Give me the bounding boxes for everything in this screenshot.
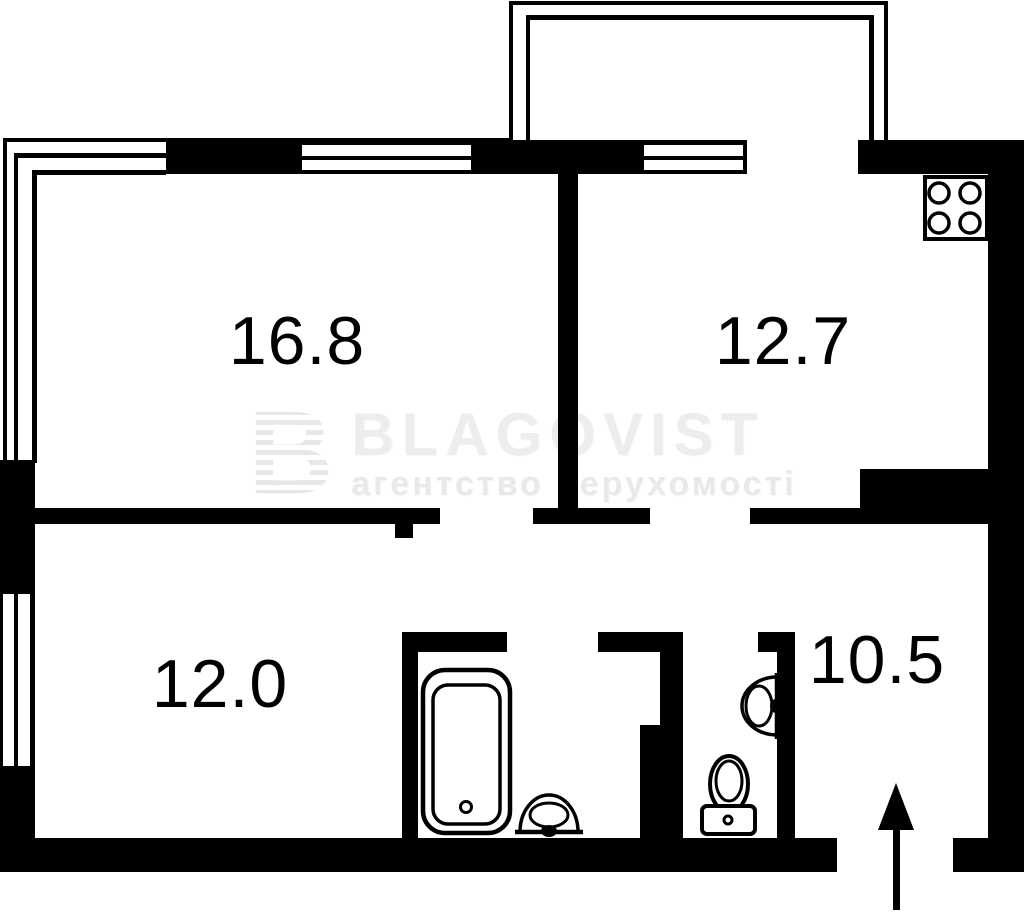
bathtub-icon [423, 670, 510, 833]
hallway-area-label: 10.5 [809, 621, 945, 699]
floor-plan: B BLAGOVIST агентство нерухомості [0, 0, 1024, 915]
living-room-area-label: 16.8 [229, 302, 365, 380]
toilet-icon [702, 756, 755, 834]
kitchen-area-label: 12.7 [715, 302, 851, 380]
bath-sink-icon [515, 795, 583, 837]
toilet-sink-icon [742, 673, 782, 739]
bedroom-area-label: 12.0 [152, 645, 288, 723]
fixtures-layer [0, 0, 1024, 915]
entrance-arrow-icon [878, 783, 914, 910]
stove-icon [925, 177, 987, 239]
